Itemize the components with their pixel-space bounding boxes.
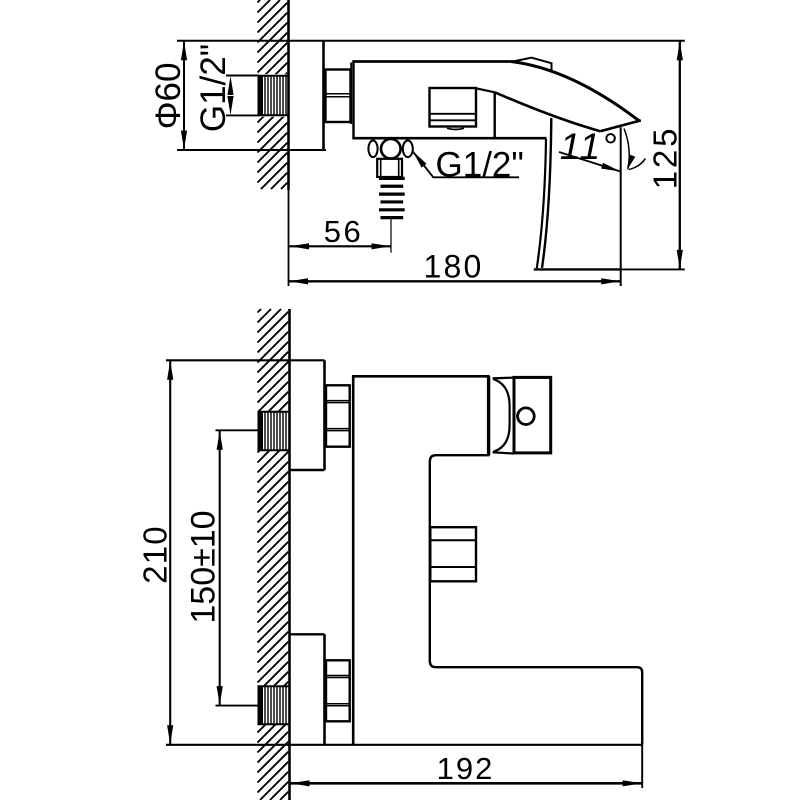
svg-text:G1/2": G1/2" <box>194 44 233 132</box>
svg-text:150±10: 150±10 <box>185 510 223 623</box>
svg-text:56: 56 <box>324 214 363 249</box>
svg-text:Φ60: Φ60 <box>149 63 188 130</box>
svg-text:125: 125 <box>647 126 684 189</box>
svg-text:180: 180 <box>424 249 484 285</box>
svg-text:210: 210 <box>137 525 174 584</box>
svg-text:11°: 11° <box>560 125 618 167</box>
svg-text:G1/2": G1/2" <box>436 146 524 185</box>
svg-text:192: 192 <box>437 751 495 786</box>
